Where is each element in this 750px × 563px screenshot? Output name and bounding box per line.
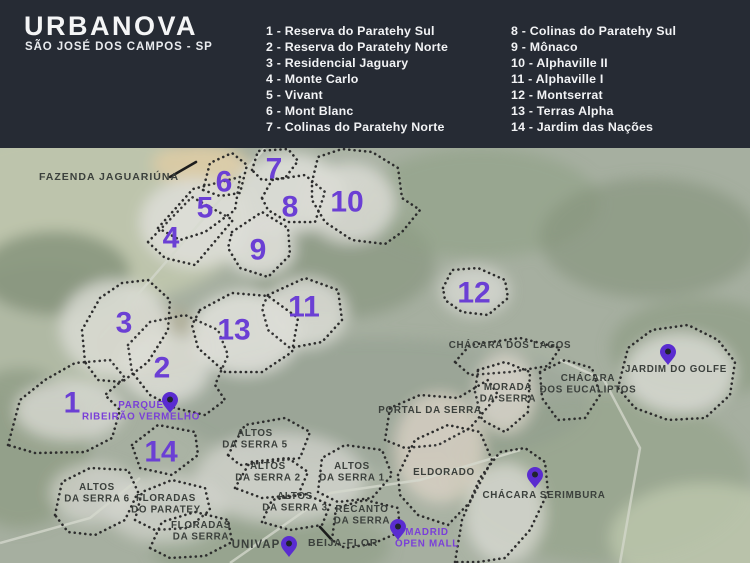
area-number-12: 12 [457, 277, 490, 310]
page-title: URBANOVA [24, 11, 198, 42]
area-number-7: 7 [266, 153, 283, 186]
area-number-3: 3 [116, 307, 133, 340]
legend-item: 12 - Montserrat [511, 87, 676, 103]
label-jardim-do-golfe: JARDIM DO GOLFE [625, 364, 727, 375]
legend-item: 10 - Alphaville II [511, 55, 676, 71]
area-number-1: 1 [64, 387, 81, 420]
legend-item: 14 - Jardim das Nações [511, 119, 676, 135]
header: URBANOVA SÃO JOSÉ DOS CAMPOS - SP 1 - Re… [0, 0, 750, 148]
legend-item: 7 - Colinas do Paratehy Norte [266, 119, 448, 135]
label-fazenda-jaguariuna: FAZENDA JAGUARIÚNA [39, 170, 179, 183]
label-univap: UNIVAP [232, 539, 281, 551]
label-floradas-do-paratey: FLORADASDO PARATEY [131, 493, 201, 516]
satellite-map: FAZENDA JAGUARIÚNACHÁCARA DOS LAGOSMORAD… [0, 148, 750, 563]
legend-item: 9 - Mônaco [511, 39, 676, 55]
label-recanto-da-serra: RECANTODA SERRA [334, 504, 390, 527]
label-chacara-serimbura: CHÁCARA SERIMBURA [482, 489, 605, 501]
legend-item: 6 - Mont Blanc [266, 103, 448, 119]
area-number-13: 13 [217, 314, 250, 347]
label-chacara-dos-lagos: CHÁCARA DOS LAGOS [449, 339, 572, 351]
area-number-11: 11 [288, 291, 320, 324]
legend-item: 1 - Reserva do Paratehy Sul [266, 23, 448, 39]
label-floradas-da-serra: FLORADASDA SERRA [171, 520, 231, 543]
page-subtitle: SÃO JOSÉ DOS CAMPOS - SP [25, 41, 213, 53]
area-number-10: 10 [330, 186, 363, 219]
legend-column-1: 1 - Reserva do Paratehy Sul2 - Reserva d… [266, 23, 448, 135]
area-number-5: 5 [197, 192, 214, 225]
area-number-14: 14 [144, 436, 178, 469]
area-number-6: 6 [216, 166, 233, 199]
legend-item: 2 - Reserva do Paratehy Norte [266, 39, 448, 55]
legend-item: 4 - Monte Carlo [266, 71, 448, 87]
map-canvas: FAZENDA JAGUARIÚNACHÁCARA DOS LAGOSMORAD… [0, 148, 750, 563]
area-number-8: 8 [282, 191, 299, 224]
legend-item: 5 - Vivant [266, 87, 448, 103]
label-morada-da-serra: MORADADA SERRA [480, 382, 536, 405]
legend-item: 13 - Terras Alpha [511, 103, 676, 119]
legend-item: 11 - Alphaville I [511, 71, 676, 87]
area-number-4: 4 [163, 222, 180, 255]
area-number-2: 2 [154, 352, 171, 385]
legend-column-2: 8 - Colinas do Paratehy Sul9 - Mônaco10 … [511, 23, 676, 135]
label-beija-flor: BEIJA-FLOR [308, 537, 378, 549]
legend-item: 8 - Colinas do Paratehy Sul [511, 23, 676, 39]
legend-item: 3 - Residencial Jaguary [266, 55, 448, 71]
label-eldorado: ELDORADO [413, 467, 475, 478]
area-number-9: 9 [250, 234, 267, 267]
label-portal-da-serra: PORTAL DA SERRA [378, 405, 481, 416]
